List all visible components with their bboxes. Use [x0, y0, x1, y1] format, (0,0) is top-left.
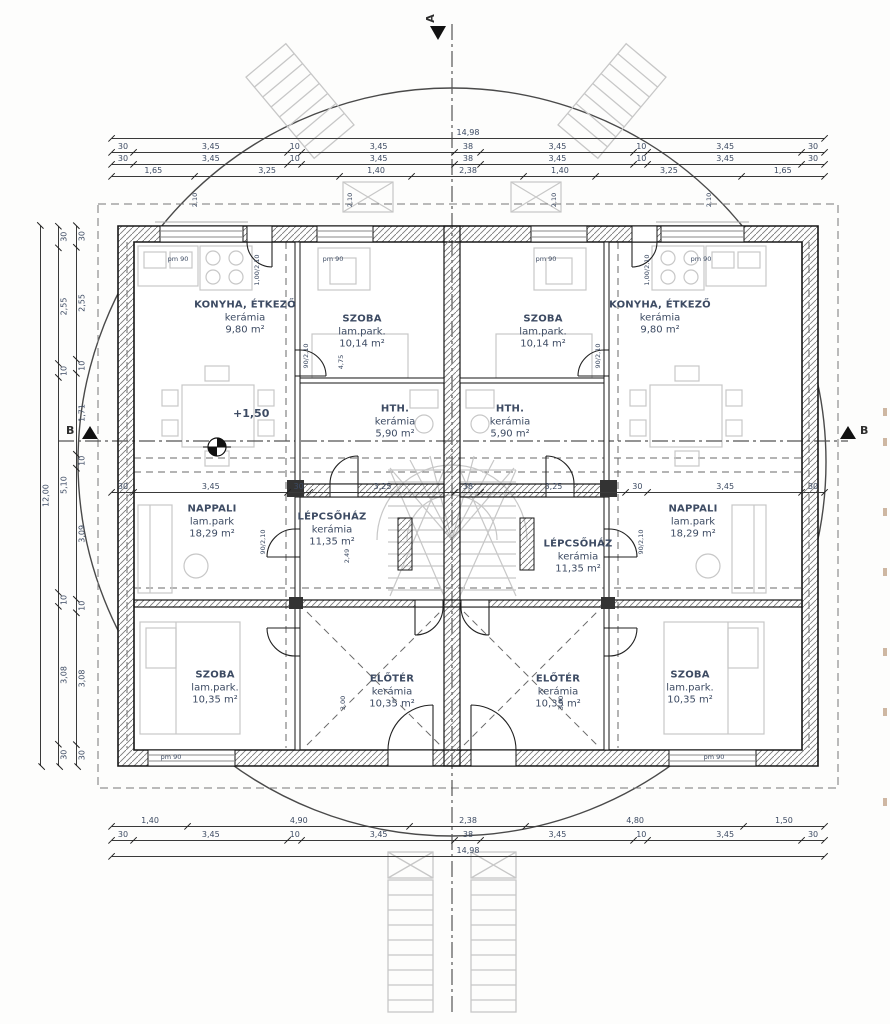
- dim-value: 30: [112, 143, 134, 152]
- door-size-tag: 90/2,10: [302, 344, 310, 369]
- room-label-hth-left: HTH. kerámia 5,90 m²: [375, 403, 415, 441]
- dim-value: 30: [802, 483, 824, 492]
- dim-value: 30: [288, 483, 310, 492]
- dim-value: 10: [288, 155, 302, 164]
- dim-value: 1,50: [744, 817, 824, 826]
- hall-length-tag: 4,75: [337, 355, 345, 369]
- dim-value: 1,71: [77, 373, 89, 454]
- interior-dim-tag: 3,00: [557, 696, 565, 710]
- parapet-tag: pm 90: [691, 255, 712, 263]
- dim-value: 10: [59, 593, 71, 607]
- dim-middle-row: 303,45303,25383,25303,4530: [112, 480, 824, 493]
- dim-value: 4,90: [188, 817, 410, 826]
- clipped-right-text-marks: [883, 408, 887, 806]
- door-size-tag: 90/2,10: [594, 344, 602, 369]
- floor-plan-drawing: 14,98 303,45103,45383,45103,4530 303,451…: [0, 0, 890, 1024]
- dim-value: 3,25: [310, 483, 456, 492]
- dim-value: 38: [455, 483, 480, 492]
- dim-bottom-total: 14,98: [112, 844, 824, 857]
- window-height-tag: 2,10: [550, 193, 558, 207]
- window-height-tag: 2,10: [191, 193, 199, 207]
- door-size-tag: 1,00/2,10: [643, 254, 651, 285]
- dim-bottom-row-walls: 303,45103,45383,45103,4530: [112, 828, 824, 841]
- dim-top-row-openings: 1,653,251,402,381,403,251,65: [112, 164, 824, 177]
- dim-value: 5,10: [59, 378, 71, 593]
- parapet-tag: pm 90: [168, 255, 189, 263]
- dim-value: 14,98: [112, 129, 824, 138]
- dim-value: 3,25: [596, 167, 741, 176]
- dim-value: 30: [802, 143, 824, 152]
- dim-value: 3,45: [134, 831, 288, 840]
- dim-value: 3,45: [648, 155, 802, 164]
- dim-value: 1,40: [340, 167, 413, 176]
- dim-value: 4,80: [526, 817, 743, 826]
- dim-value: 1,65: [742, 167, 825, 176]
- room-label-hth-right: HTH. kerámia 5,90 m²: [490, 403, 530, 441]
- door-size-tag: 90/2,10: [637, 530, 645, 555]
- dim-value: 38: [455, 831, 480, 840]
- door-size-tag: 1,00/2,10: [253, 254, 261, 285]
- dim-value: 38: [455, 155, 480, 164]
- section-marker-a-label: A: [424, 14, 437, 23]
- section-marker-b-left-arrow: [82, 426, 98, 439]
- dim-value: 3,09: [77, 468, 89, 600]
- window-height-tag: 2,10: [705, 193, 713, 207]
- room-label-konyha-left: KONYHA, ÉTKEZŐ kerámia 9,80 m²: [194, 299, 296, 337]
- room-label-szoba-top-left: SZOBA lam.park. 10,14 m²: [338, 313, 385, 351]
- dim-value: 10: [634, 155, 648, 164]
- interior-dim-tag: 3,00: [339, 696, 347, 710]
- room-label-nappali-right: NAPPALI lam.park 18,29 m²: [668, 503, 717, 541]
- dim-value: 3,45: [302, 143, 456, 152]
- dim-value: 3,25: [195, 167, 340, 176]
- dim-value: 3,45: [481, 143, 635, 152]
- dim-value: 30: [59, 226, 71, 248]
- dim-value: 3,45: [481, 155, 635, 164]
- dim-value: 2,38: [410, 817, 527, 826]
- room-label-konyha-right: KONYHA, ÉTKEZŐ kerámia 9,80 m²: [609, 299, 711, 337]
- window-height-tag: 2,10: [346, 193, 354, 207]
- dim-value: 30: [802, 155, 824, 164]
- door-size-tag: 90/2,10: [259, 530, 267, 555]
- dim-left-row-mid: 302,55105,10103,0830: [58, 226, 71, 766]
- dim-value: 10: [77, 359, 89, 373]
- dim-value: 12,00: [41, 226, 53, 766]
- dim-left-total: 12,00: [40, 226, 53, 766]
- parapet-tag: pm 90: [536, 255, 557, 263]
- interior-dim-tag: 2,49: [343, 549, 351, 563]
- dim-value: 14,98: [112, 847, 824, 856]
- dim-value: 3,08: [77, 613, 89, 744]
- section-marker-b-right-label: B: [860, 424, 868, 437]
- dim-top-total: 14,98: [112, 126, 824, 139]
- dim-value: 1,40: [524, 167, 597, 176]
- dim-value: 30: [59, 744, 71, 766]
- dim-value: 10: [59, 364, 71, 378]
- room-label-lepcsohaz-right: LÉPCSŐHÁZ kerámia 11,35 m²: [544, 538, 613, 576]
- dim-value: 3,45: [134, 143, 288, 152]
- room-label-eloter-left: ELŐTÉR kerámia 10,35 m²: [369, 673, 415, 711]
- room-label-szoba-top-right: SZOBA lam.park. 10,14 m²: [519, 313, 566, 351]
- dim-value: 30: [112, 155, 134, 164]
- dim-value: 2,55: [77, 247, 89, 359]
- dim-value: 30: [626, 483, 648, 492]
- dim-value: 10: [77, 599, 89, 613]
- dim-value: 3,45: [648, 831, 802, 840]
- dim-value: 3,45: [134, 483, 288, 492]
- dim-value: 10: [288, 831, 302, 840]
- dim-value: 2,55: [59, 248, 71, 364]
- dim-value: 30: [77, 226, 89, 247]
- dim-value: 3,45: [481, 831, 635, 840]
- dim-value: 10: [288, 143, 302, 152]
- section-marker-a-arrow: [430, 26, 446, 40]
- dim-value: 1,65: [112, 167, 195, 176]
- dim-value: 10: [634, 831, 648, 840]
- level-annotation: +1,50: [233, 407, 269, 420]
- parapet-tag: pm 90: [161, 753, 182, 761]
- dim-value: 3,25: [481, 483, 627, 492]
- room-label-szoba-bottom-right: SZOBA lam.park. 10,35 m²: [666, 669, 713, 707]
- dim-value: 3,45: [648, 483, 802, 492]
- dim-value: 3,08: [59, 607, 71, 744]
- dim-value: 1,40: [112, 817, 188, 826]
- dim-value: 30: [802, 831, 824, 840]
- dim-value: 10: [77, 454, 89, 468]
- dim-value: 3,45: [302, 831, 456, 840]
- room-label-szoba-bottom-left: SZOBA lam.park. 10,35 m²: [191, 669, 238, 707]
- dim-value: 38: [455, 143, 480, 152]
- room-label-nappali-left: NAPPALI lam.park 18,29 m²: [187, 503, 236, 541]
- dim-value: 3,45: [648, 143, 802, 152]
- section-marker-b-right-arrow: [840, 426, 856, 439]
- dim-value: 2,38: [412, 167, 523, 176]
- room-label-lepcsohaz-left: LÉPCSŐHÁZ kerámia 11,35 m²: [298, 511, 367, 549]
- parapet-tag: pm 90: [323, 255, 344, 263]
- dim-value: 30: [112, 831, 134, 840]
- dim-bottom-row-openings: 1,404,902,384,801,50: [112, 814, 824, 827]
- dim-value: 10: [634, 143, 648, 152]
- dim-value: 30: [112, 483, 134, 492]
- parapet-tag: pm 90: [704, 753, 725, 761]
- dim-value: 3,45: [302, 155, 456, 164]
- dim-left-row-inner: 302,55101,71103,09103,0830: [76, 226, 89, 766]
- dim-value: 3,45: [134, 155, 288, 164]
- dim-value: 30: [77, 745, 89, 766]
- section-marker-b-left-label: B: [66, 424, 74, 437]
